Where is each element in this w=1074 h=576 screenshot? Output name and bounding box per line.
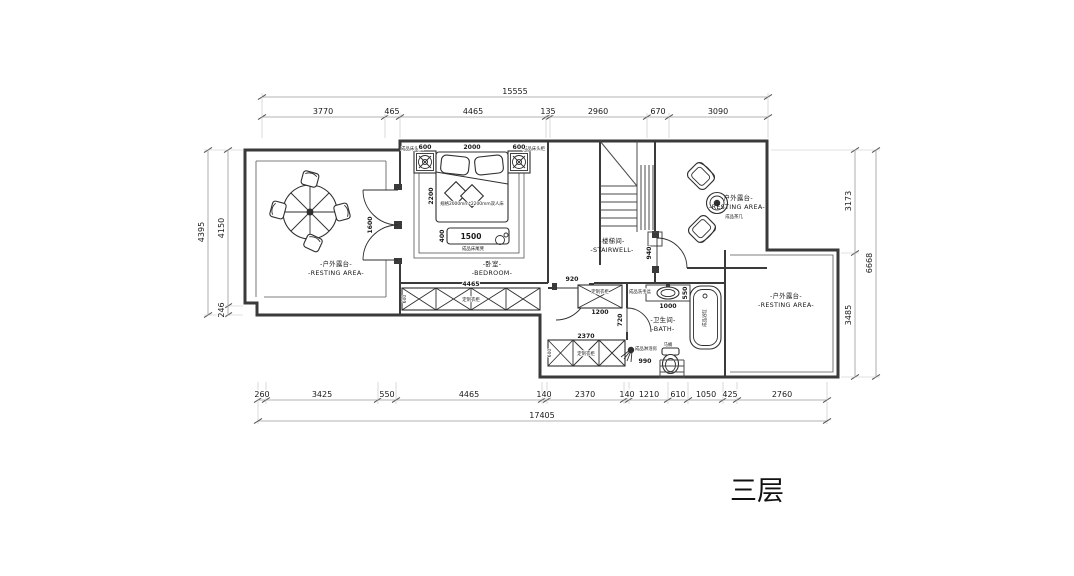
french-door-icon: 1600 (363, 190, 398, 260)
balcony-left-label-en: -RESTING AREA- (308, 269, 364, 277)
dim-top-seg-6: 3090 (708, 107, 728, 116)
umbrella-table-icon (269, 170, 351, 253)
dim-chain-bottom: 260 3425 550 4465 140 2370 140 1210 610 … (254, 382, 831, 424)
bed-spec-label: 规格2000mm*2200mm双人床 (440, 200, 504, 207)
nightstand-right-label: 成品床头柜 (523, 145, 546, 152)
shower-label: 成品淋浴房 (635, 345, 658, 352)
room-label-bedroom: -卧室- -BEDROOM- (472, 259, 512, 277)
dim-bottom-seg-3: 4465 (459, 390, 479, 399)
sink-icon: 成品洗手盆 1000 550 (629, 284, 690, 310)
outer-walls (245, 141, 838, 377)
balcony-top-right-label-en: -RESTING AREA- (709, 203, 765, 211)
stairwell-label-en: -STAIRWELL- (590, 246, 633, 254)
bench-depth-dim: 400 (439, 229, 446, 243)
balcony-right-label-en: -RESTING AREA- (758, 301, 814, 309)
wardrobe-small-dim: 1200 (591, 309, 609, 316)
bathtub-icon: 成品浴缸 (690, 286, 721, 349)
wardrobe-long-depth-dim: 600 (402, 295, 408, 304)
bed-bench-icon: 1500 400 成品床尾凳 (439, 228, 509, 252)
dim-top-seg-0: 3770 (313, 107, 333, 116)
bath-door-icon: 720 (617, 308, 651, 332)
wardrobe-bath-dim: 2370 (577, 333, 595, 340)
dim-top-overall: 15555 (502, 87, 527, 96)
wardrobe-long-dim: 4465 (462, 281, 479, 288)
balcony-right-label-cn: -户外露台- (770, 291, 802, 300)
dim-bottom-seg-9: 1050 (696, 390, 716, 399)
dim-top-seg-4: 2960 (588, 107, 608, 116)
balcony-top-right-label-cn: -户外露台- (721, 193, 753, 202)
bed-width-dim: 2000 (463, 144, 481, 151)
dim-bottom-seg-0: 260 (254, 390, 269, 399)
dim-top-seg-3: 135 (540, 107, 555, 116)
room-label-balcony-right: -户外露台- -RESTING AREA- (758, 291, 814, 309)
dim-right-seg-1: 3485 (844, 305, 853, 325)
wardrobe-bath-icon: 2370 定制衣柜 600 (547, 333, 625, 366)
wardrobe-bath-small-icon: 定制衣柜 1200 (578, 285, 622, 316)
sink-depth-dim: 550 (682, 286, 689, 300)
page-title: 三层 (730, 476, 784, 507)
nightstand-left-dim: 600 (419, 144, 433, 151)
dim-bottom-seg-5: 2370 (575, 390, 595, 399)
dim-left-seg-1: 246 (217, 302, 226, 317)
dim-left-seg-0: 4150 (217, 218, 226, 238)
dim-chain-right: 3173 3485 6668 (771, 147, 880, 379)
floor-plan-canvas: 1600 920 940 720 -户外露台- -RESTING AREA- (0, 0, 1074, 576)
tea-table-label: 成品茶几 (725, 213, 743, 220)
dim-top-seg-1: 465 (384, 107, 399, 116)
room-label-balcony-left: -户外露台- -RESTING AREA- (308, 259, 364, 277)
dim-right-overall: 6668 (865, 253, 874, 273)
dim-bottom-seg-11: 2760 (772, 390, 792, 399)
corridor-door-dim: 920 (566, 276, 580, 283)
dim-chain-top: 15555 3770 465 4465 135 2960 670 3090 (258, 87, 772, 138)
stairs-icon (600, 141, 662, 246)
wardrobe-corridor-icon: 4465 定制衣柜 600 (402, 281, 540, 310)
bed-length-dim: 2200 (428, 187, 435, 205)
dim-top-seg-5: 670 (650, 107, 665, 116)
french-door-dim: 1600 (367, 216, 374, 234)
bath-door-dim: 720 (617, 313, 624, 327)
toilet-label: 马桶 (664, 341, 673, 348)
bench-label: 成品床尾凳 (462, 245, 485, 252)
dim-chain-left: 4395 4150 246 (197, 147, 243, 317)
stairwell-door-dim: 940 (646, 246, 653, 260)
toilet-icon: 马桶 (662, 341, 679, 374)
wardrobe-bath-label: 定制衣柜 (577, 350, 595, 357)
dim-bottom-seg-4: 140 (536, 390, 551, 399)
wardrobe-corridor-label: 定制衣柜 (462, 296, 480, 303)
dim-bottom-seg-8: 610 (670, 390, 685, 399)
bath-label-cn: -卫生间- (650, 315, 675, 324)
dim-right-seg-0: 3173 (844, 191, 853, 211)
dim-bottom-seg-6: 140 (619, 390, 634, 399)
stairwell-label-cn: -楼梯间- (599, 236, 624, 245)
dim-left-overall: 4395 (197, 222, 206, 242)
room-label-bath: -卫生间- -BATH- (650, 315, 675, 333)
floor-plan-drawing: 1600 920 940 720 -户外露台- -RESTING AREA- (0, 0, 1074, 576)
balcony-left-label-cn: -户外露台- (320, 259, 352, 268)
dim-bottom-overall: 17405 (529, 411, 554, 420)
shower-icon: 成品淋浴房 990 (621, 345, 658, 365)
bedroom-label-cn: -卧室- (483, 259, 502, 268)
dim-top-seg-2: 4465 (463, 107, 483, 116)
dim-bottom-seg-10: 425 (722, 390, 737, 399)
bathtub-label: 成品浴缸 (701, 309, 708, 327)
wardrobe-bath-depth-dim: 600 (547, 349, 553, 358)
wardrobe-small-label: 定制衣柜 (591, 288, 609, 295)
bench-length-dim: 1500 (461, 232, 482, 241)
shower-width-dim: 990 (639, 358, 653, 365)
dim-bottom-seg-2: 550 (379, 390, 394, 399)
balcony-right-railing (730, 255, 833, 372)
dim-bottom-seg-7: 1210 (639, 390, 659, 399)
sink-label: 成品洗手盆 (629, 288, 652, 295)
sink-width-dim: 1000 (659, 303, 677, 310)
nightstand-right-dim: 600 (513, 144, 527, 151)
stairwell-door-icon: 940 (646, 238, 687, 268)
bedroom-label-en: -BEDROOM- (472, 269, 512, 277)
bath-label-en: -BATH- (651, 325, 674, 333)
room-label-stairwell: -楼梯间- -STAIRWELL- (590, 236, 633, 254)
dim-bottom-seg-1: 3425 (312, 390, 332, 399)
